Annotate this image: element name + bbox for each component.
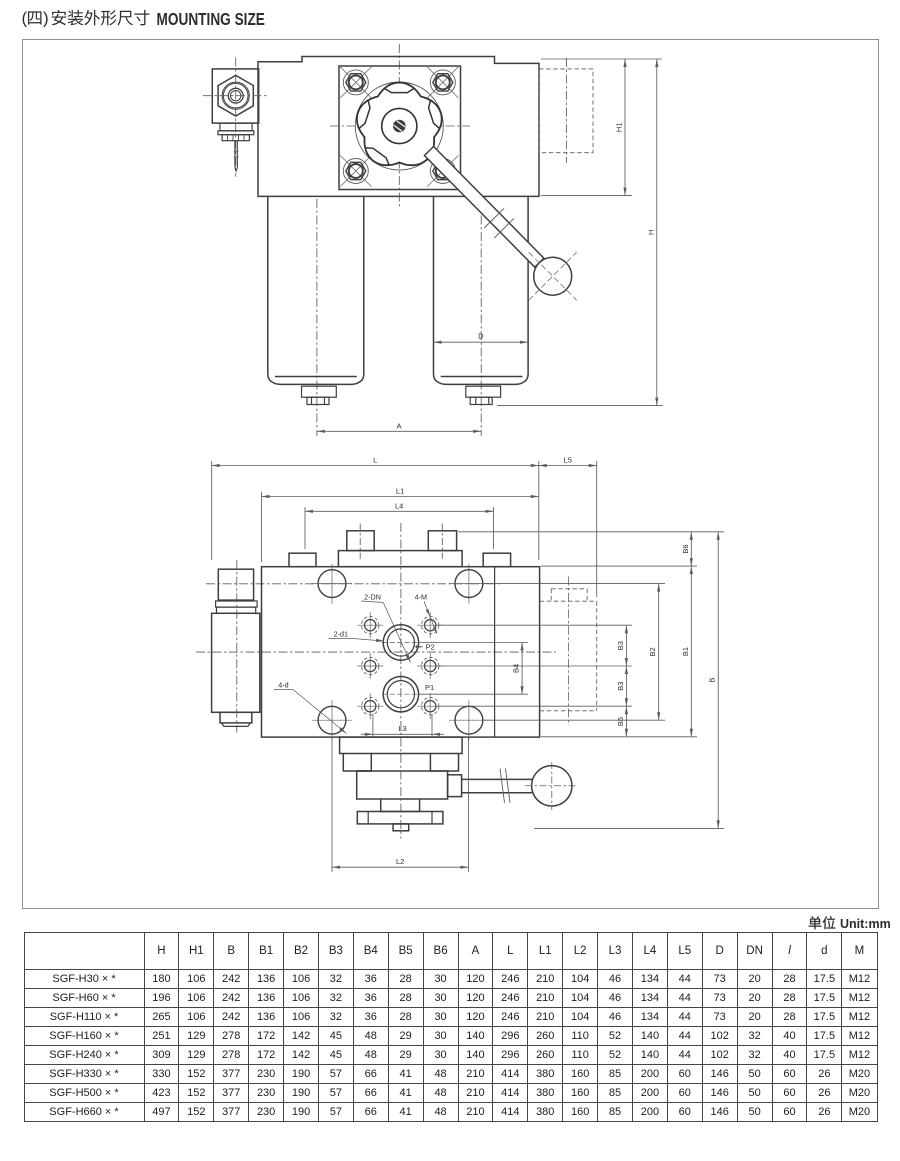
svg-text:B6: B6 [681,544,690,553]
svg-text:P2: P2 [426,643,435,652]
svg-text:Unit:mm: Unit:mm [840,917,891,931]
svg-text:D: D [478,331,484,340]
svg-text:H: H [646,230,655,235]
svg-text:L4: L4 [395,501,403,510]
svg-text:4-d: 4-d [278,681,288,690]
svg-text:): ) [43,9,49,28]
svg-text:L5: L5 [564,456,572,465]
svg-text:B2: B2 [648,647,657,656]
svg-text:B1: B1 [681,647,690,656]
svg-text:B3: B3 [616,682,625,691]
svg-text:B4: B4 [512,664,521,673]
svg-text:H1: H1 [615,123,624,133]
svg-text:L3: L3 [398,724,406,733]
svg-text:L: L [373,456,377,465]
svg-text:B3: B3 [616,641,625,650]
svg-text:A: A [396,421,401,430]
svg-text:P1: P1 [425,683,434,692]
svg-text:(: ( [22,9,28,28]
svg-text:L2: L2 [396,857,404,866]
svg-text:2-DN: 2-DN [364,593,381,602]
svg-text:B5: B5 [616,717,625,726]
svg-text:B: B [708,678,717,683]
svg-text:L1: L1 [396,487,404,496]
svg-text:2-d1: 2-d1 [334,630,348,639]
svg-text:MOUNTING SIZE: MOUNTING SIZE [157,11,265,30]
svg-text:4-M: 4-M [415,593,427,602]
